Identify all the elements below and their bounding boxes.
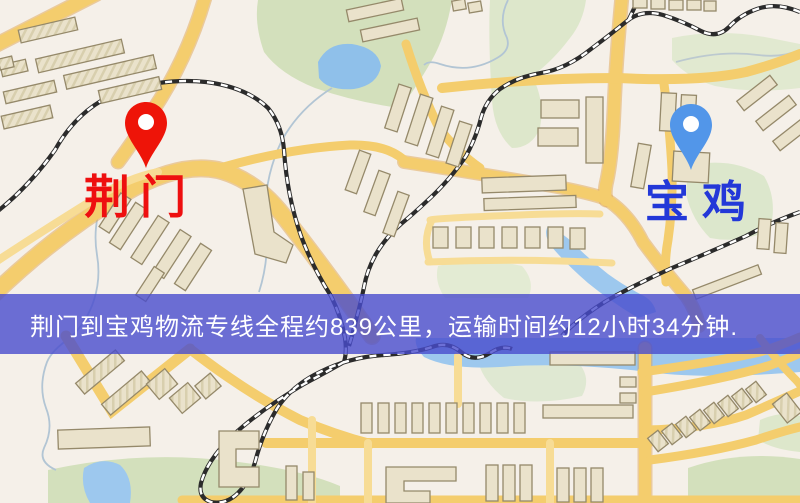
map-image: 荆门 宝鸡 荆门到宝鸡物流专线全程约839公里，运输时间约12小时34分钟. <box>0 0 800 503</box>
destination-city-label: 宝鸡 <box>645 181 759 225</box>
route-info-text: 荆门到宝鸡物流专线全程约839公里，运输时间约12小时34分钟. <box>30 307 738 342</box>
map-canvas <box>0 0 800 503</box>
origin-city-label: 荆门 <box>84 174 196 220</box>
route-info-banner: 荆门到宝鸡物流专线全程约839公里，运输时间约12小时34分钟. <box>0 294 800 354</box>
